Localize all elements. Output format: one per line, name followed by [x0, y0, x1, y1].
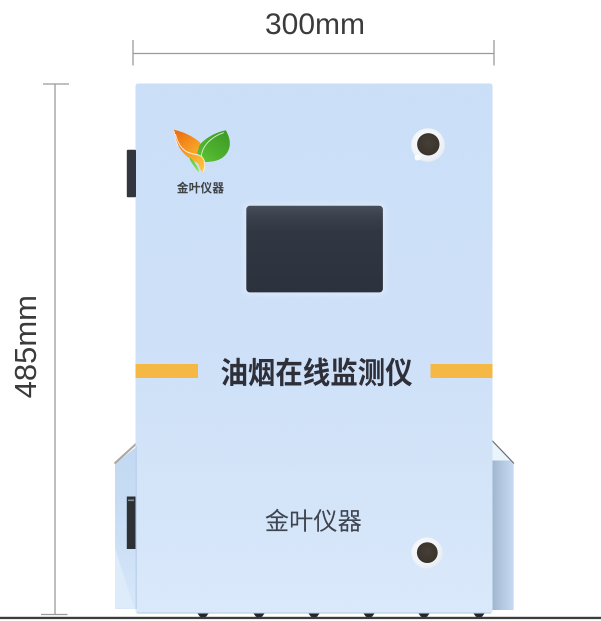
svg-text:485mm: 485mm: [8, 295, 43, 398]
svg-text:300mm: 300mm: [265, 8, 365, 41]
